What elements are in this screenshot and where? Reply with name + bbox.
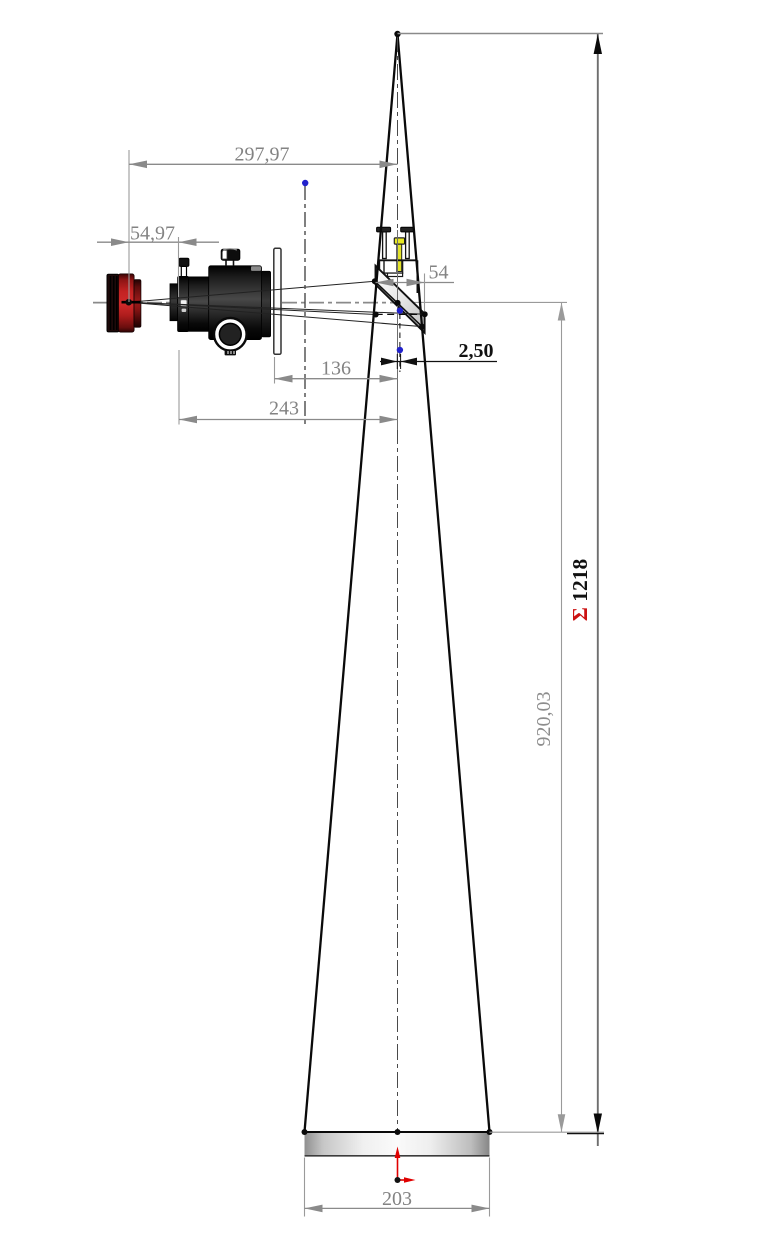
svg-text:297,97: 297,97 (235, 144, 290, 166)
svg-text:136: 136 (321, 358, 351, 380)
svg-text:54: 54 (429, 262, 449, 284)
svg-text:203: 203 (382, 1188, 412, 1210)
svg-text:920,03: 920,03 (533, 692, 555, 747)
svg-text:Σ 1218: Σ 1218 (568, 559, 592, 622)
svg-text:54,97: 54,97 (130, 223, 175, 245)
svg-text:243: 243 (269, 398, 299, 420)
svg-text:2,50: 2,50 (459, 340, 494, 362)
